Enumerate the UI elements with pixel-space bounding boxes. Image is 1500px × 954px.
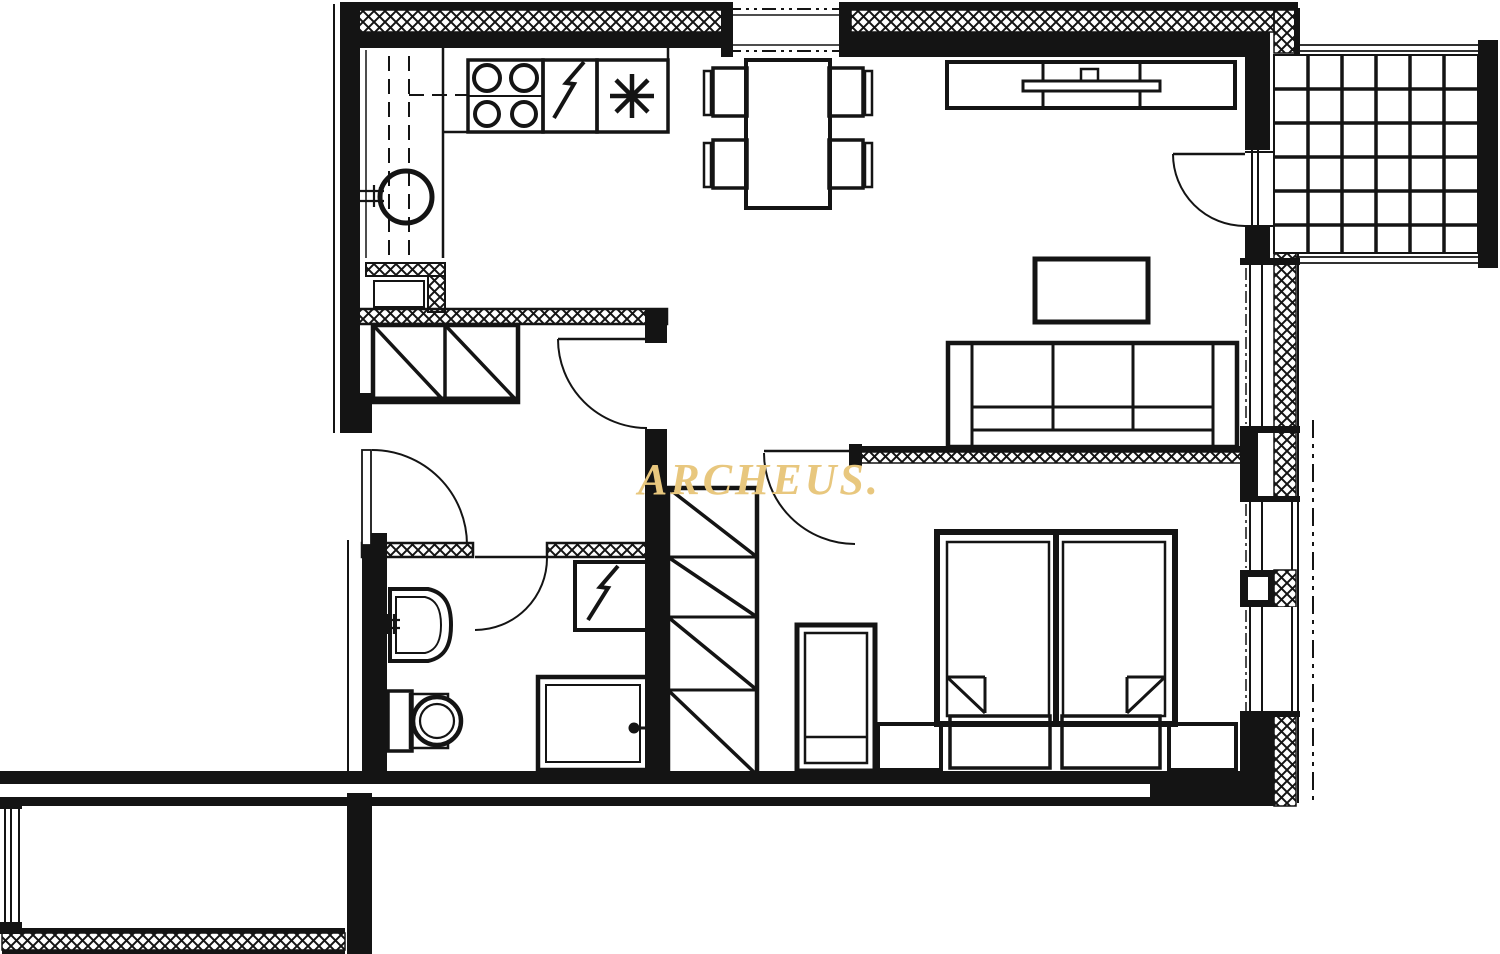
bathroom-door [475, 557, 547, 630]
kitchen [358, 48, 668, 258]
burner-icon [511, 65, 537, 91]
shower [538, 677, 660, 770]
hallway [373, 325, 518, 402]
balcony-railing [1478, 40, 1498, 268]
window-pier [1240, 570, 1296, 607]
coffee-table [1035, 259, 1148, 322]
hallway-door [558, 339, 647, 428]
floor-plan-drawing: ARCHEUS. [0, 0, 1500, 954]
burner-icon [475, 102, 499, 126]
nightstand [878, 724, 941, 770]
balcony-door-swing [1173, 154, 1245, 226]
cooktop [468, 60, 543, 132]
balcony-bottom-rail [1296, 257, 1478, 263]
service-shaft [366, 263, 445, 312]
dining-window [721, 2, 851, 57]
blanket-fold [1127, 677, 1165, 713]
sink-faucet-icon [358, 185, 384, 207]
tv-stand-foot [1081, 69, 1098, 81]
upper-cabinet-dashed-lines [389, 56, 409, 256]
burner-icon [512, 102, 536, 126]
bedroom-window-a [1240, 496, 1300, 570]
sofa [948, 343, 1237, 447]
bathroom [378, 562, 660, 770]
bedroom-window-b [1240, 607, 1300, 717]
watermark-text: ARCHEUS. [635, 455, 881, 504]
entrance-door [362, 450, 467, 545]
bedroom [668, 488, 1236, 775]
dining-chair [829, 68, 872, 116]
dining-table [746, 60, 830, 208]
dining-chair [704, 68, 747, 116]
living-room [947, 62, 1237, 447]
floor-plan-canvas: ARCHEUS. [0, 0, 1500, 954]
dishwasher [543, 60, 597, 132]
top-wall-right [851, 2, 1300, 57]
closet-diagonal [668, 488, 757, 775]
balcony-top-rail [1296, 45, 1478, 51]
hallway-wardrobe [373, 325, 518, 402]
burner-icon [474, 65, 500, 91]
left-wall-lower [348, 533, 387, 784]
freezer [597, 60, 668, 132]
dining-chair [829, 140, 872, 188]
dining-chair [704, 140, 747, 188]
bathroom-top-wall [362, 543, 647, 557]
bathroom-sink [378, 589, 451, 661]
toilet [388, 691, 461, 751]
bedroom-closet [668, 488, 757, 775]
lightning-icon [588, 566, 618, 620]
dining-area [704, 60, 872, 208]
double-bed [937, 532, 1175, 768]
tv-screen [1023, 81, 1160, 91]
top-wall-left [345, 2, 727, 48]
lightning-icon [554, 62, 584, 118]
crib [797, 625, 875, 771]
asterisk-snowflake-icon [610, 74, 654, 118]
tv-sideboard [947, 62, 1235, 108]
drain-dot [629, 723, 640, 734]
kitchen-sink [358, 171, 432, 223]
washing-machine [575, 562, 647, 630]
corridor-room [0, 793, 372, 954]
blanket-fold [947, 677, 985, 713]
balcony [1274, 40, 1498, 268]
nightstand [1169, 724, 1236, 770]
